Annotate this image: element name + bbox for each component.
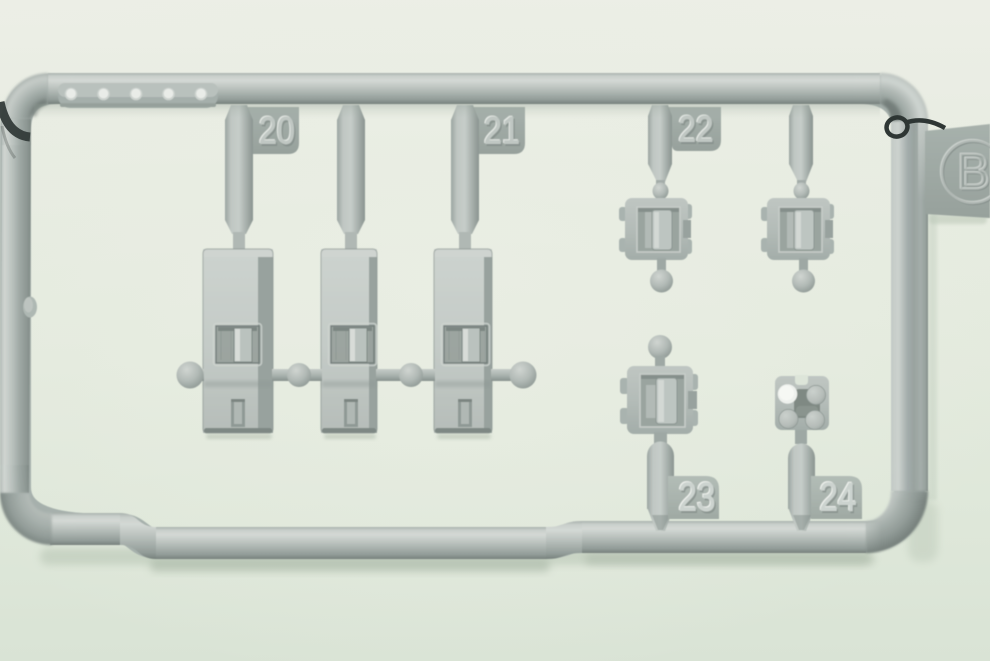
svg-text:23: 23 <box>679 476 716 520</box>
svg-text:B: B <box>957 144 990 200</box>
svg-text:24: 24 <box>820 476 857 520</box>
